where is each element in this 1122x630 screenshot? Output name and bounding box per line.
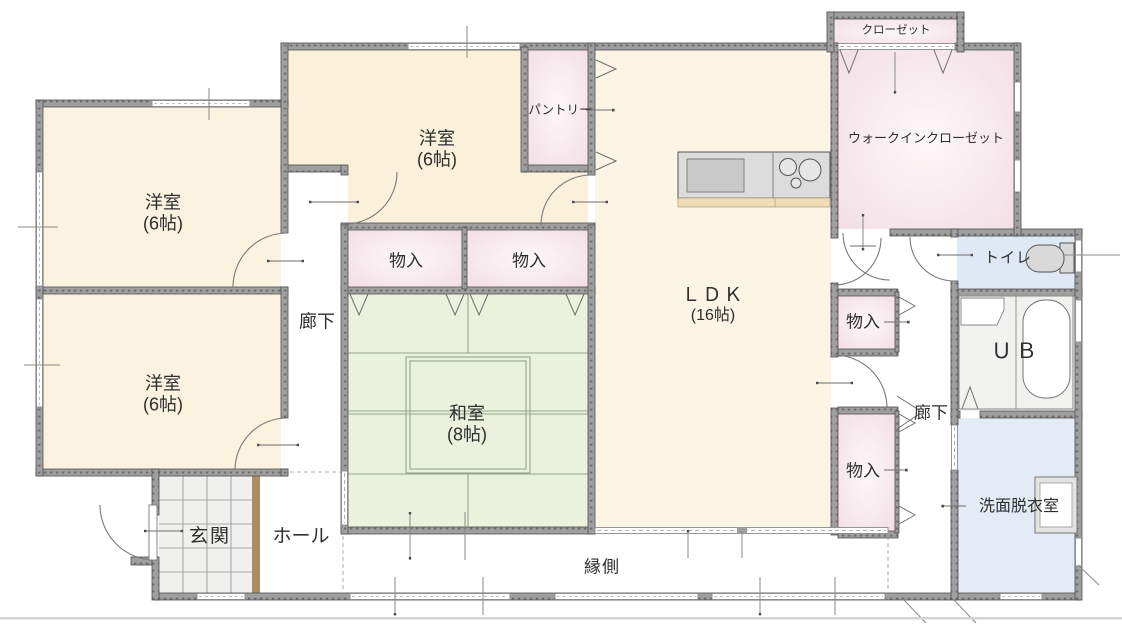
room-name: 洋室 [145,373,181,393]
floorplan-graphics [0,0,1122,630]
room-name: 物入 [846,312,880,331]
window [1076,300,1082,342]
room-label-toilet: トイレ [984,249,1032,266]
room-name: トイレ [984,249,1032,266]
room-label-western-top: 洋室 (6帖) [417,128,457,169]
room-label-storage-r2: 物入 [846,461,880,480]
floorplan: 洋室 (6帖) 洋室 (6帖) 洋室 (6帖) 和室 (8帖) ＬＤＫ (16帖… [0,0,1122,630]
window [1015,82,1021,112]
kitchen-sink-icon [687,159,744,192]
window [1076,240,1082,272]
room-label-western-bl: 洋室 (6帖) [143,373,183,414]
room-name: ホール [272,526,329,547]
room-label-ub: ＵＢ [991,340,1041,364]
page-edge-line [0,617,1122,620]
door-arc [834,355,887,408]
room-label-entrance: 玄関 [189,526,231,548]
entrance-step [252,476,260,593]
room-label-hall: ホール [272,526,329,548]
room-name: 洋室 [145,192,181,212]
bath-counter-icon [961,298,1004,325]
room-size: (8帖) [447,424,487,445]
room-name: 廊下 [914,403,948,422]
room-size: (6帖) [143,394,183,415]
room-label-closet: クローゼット [862,24,931,37]
room-name: 廊下 [299,312,335,332]
room-size: (6帖) [143,213,183,234]
door-arc [910,237,954,281]
room-label-pantry: パントリー [528,103,591,117]
toilet-icon [1026,243,1074,273]
entrance-door-leaf [149,505,157,560]
room-name: ＬＤＫ [681,285,744,306]
room-label-storage-l1: 物入 [389,251,423,270]
room-name: 物入 [389,251,423,270]
room-name: ＵＢ [991,340,1041,363]
room-name: 洋室 [419,128,455,148]
room-label-corridor-left: 廊下 [299,312,335,333]
door-arc [843,233,890,280]
room-label-storage-r1: 物入 [846,312,880,331]
room-label-washitsu: 和室 (8帖) [447,403,487,444]
entrance-door-arc [100,505,155,560]
room-size: (6帖) [417,149,457,170]
kitchen-counter [678,152,830,207]
room-name: 和室 [449,403,485,423]
room-name: クローゼット [862,24,931,36]
room-name: ウォークインクローゼット [848,131,1004,146]
room-name: 玄関 [189,526,231,547]
room-label-wic: ウォークインクローゼット [848,132,1004,147]
room-name: パントリー [528,103,591,117]
door-arc [834,238,881,285]
window [1015,160,1021,192]
room-name: 物入 [512,251,546,270]
room-label-western-tl: 洋室 (6帖) [143,192,183,233]
window [1076,538,1082,566]
room-label-corridor-right: 廊下 [914,403,948,422]
room-name: 物入 [846,461,880,480]
room-label-ldk: ＬＤＫ (16帖) [681,285,744,325]
room-size: (16帖) [681,307,744,325]
room-name: 洗面脱衣室 [979,498,1059,515]
room-name: 縁側 [584,557,620,576]
room-label-storage-l2: 物入 [512,251,546,270]
room-label-engawa: 縁側 [584,557,620,576]
room-label-washroom: 洗面脱衣室 [979,498,1059,516]
